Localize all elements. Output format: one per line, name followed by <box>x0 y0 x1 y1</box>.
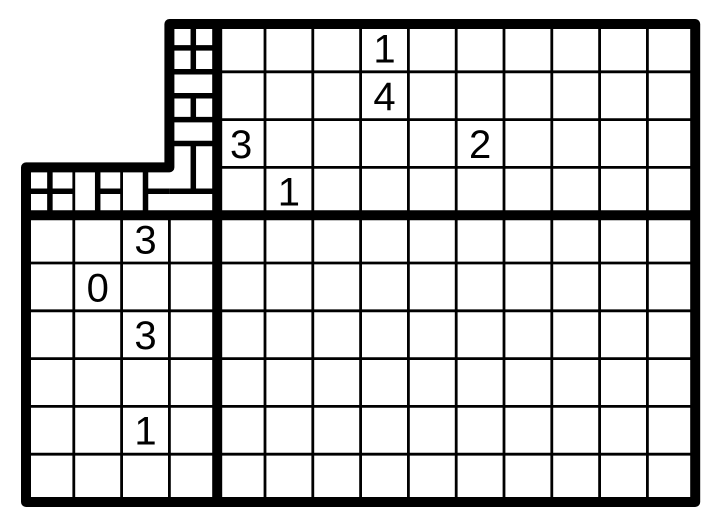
clue-number: 3 <box>134 219 156 263</box>
puzzle-screenshot: 143213031 <box>0 0 720 528</box>
clue-number: 1 <box>278 171 300 215</box>
clue-number: 3 <box>230 123 252 167</box>
clue-number: 2 <box>469 123 491 167</box>
clue-number: 4 <box>373 75 395 119</box>
puzzle-board[interactable]: 143213031 <box>0 0 720 528</box>
clue-number: 0 <box>87 266 109 310</box>
clue-number: 1 <box>134 410 156 454</box>
clue-number: 3 <box>134 314 156 358</box>
clue-number: 1 <box>373 27 395 71</box>
